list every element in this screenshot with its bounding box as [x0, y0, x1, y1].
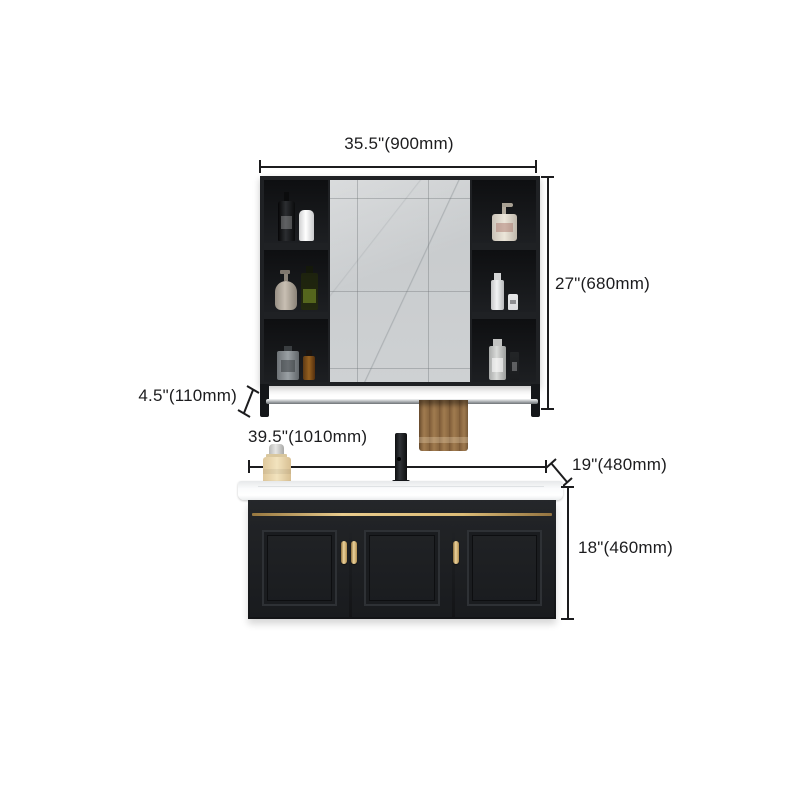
product-dimension-diagram: 35.5"(900mm) — [0, 0, 800, 800]
door-panel-frame — [467, 530, 542, 606]
dimension-tick — [535, 160, 537, 173]
vanity-doors — [250, 521, 554, 617]
towel-rail-drop-label: 4.5"(110mm) — [125, 386, 237, 406]
mirror-panel — [330, 180, 470, 382]
shelf-cell — [264, 319, 328, 382]
vanity-height-dimension-line — [567, 487, 569, 620]
mirror-tile-seam — [330, 368, 470, 369]
door-handle — [453, 541, 459, 564]
vanity-door-left — [250, 521, 349, 617]
dimension-tick — [259, 160, 261, 173]
black-slim-bottle — [510, 352, 519, 380]
gray-square-bottle — [277, 351, 299, 380]
faucet — [395, 433, 407, 483]
mirror-tile-seam — [330, 198, 470, 199]
dimension-tick — [541, 408, 554, 410]
mirror-tile-seam — [330, 291, 470, 292]
door-handle — [351, 541, 357, 564]
vanity-depth-label: 19"(480mm) — [572, 455, 667, 475]
taupe-soap-dispenser — [275, 281, 297, 310]
vanity-door-center — [352, 521, 451, 617]
dimension-tick — [561, 618, 574, 620]
gray-spray-bottle — [489, 346, 506, 380]
mirror-height-label: 27"(680mm) — [555, 274, 650, 294]
left-shelf-column — [264, 180, 328, 382]
shelf-cell — [264, 250, 328, 313]
gold-trim-strip — [252, 513, 552, 516]
towel-rail-drop-mark — [238, 384, 262, 418]
shelf-cell — [472, 319, 536, 382]
mirror-width-label: 35.5"(900mm) — [259, 134, 539, 154]
shelf-cell — [472, 250, 536, 313]
mirror-width-dimension-line — [259, 166, 537, 168]
shelf-cell — [264, 180, 328, 243]
mirror-height-dimension-line — [547, 177, 549, 409]
vanity-height-label: 18"(460mm) — [578, 538, 673, 558]
olive-glass-bottle — [301, 273, 318, 310]
vanity-cabinet — [248, 500, 556, 619]
mirror-cabinet-interior — [264, 180, 536, 382]
dimension-tick — [248, 460, 250, 473]
white-tube — [508, 294, 518, 310]
white-spray-bottle — [491, 280, 504, 310]
dimension-tick — [561, 486, 574, 488]
hand-towel — [419, 400, 468, 451]
vanity-width-label: 39.5"(1010mm) — [248, 427, 367, 447]
amber-bottle — [303, 356, 315, 380]
white-cylinder-bottle — [299, 210, 314, 241]
vanity-door-right — [455, 521, 554, 617]
towel-rail-bar — [266, 399, 538, 404]
door-panel-frame — [364, 530, 439, 606]
dimension-tick — [541, 176, 554, 178]
shelf-cell — [472, 180, 536, 243]
mirror-tile-seam — [428, 180, 429, 382]
door-handle — [341, 541, 347, 564]
black-pump-bottle — [278, 201, 295, 241]
mirror-tile-seam — [357, 180, 358, 382]
sink-counter — [238, 481, 563, 500]
door-panel-frame — [262, 530, 337, 606]
right-shelf-column — [472, 180, 536, 382]
cream-pump-jar — [492, 214, 517, 241]
mirror-cabinet — [260, 176, 540, 386]
